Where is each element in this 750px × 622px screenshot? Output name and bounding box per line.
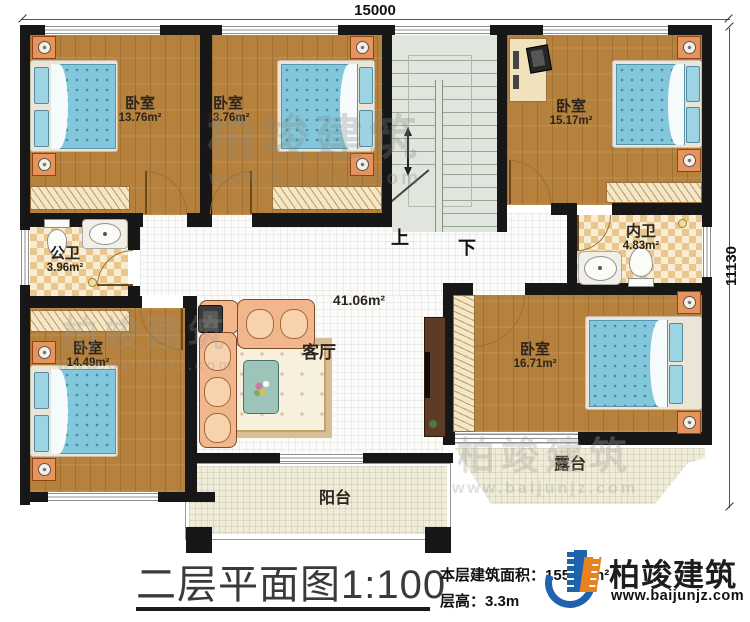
sink-drain-dot [598, 266, 602, 270]
lamp-icon [38, 158, 51, 171]
stair-arrow-up-icon [404, 127, 412, 136]
nightstand [677, 149, 701, 172]
bedroom-tl-label: 卧室 13.76m² [103, 96, 177, 124]
bedroom-br-label: 卧室 16.71m² [498, 342, 572, 370]
lamp-icon [38, 346, 51, 359]
window [702, 227, 712, 277]
inner-bath-label: 内卫 4.83m² [604, 224, 678, 252]
logo-building-orange-icon [580, 557, 602, 592]
room-name: 卧室 [54, 341, 122, 357]
nightstand [677, 411, 701, 434]
nightstand [32, 36, 56, 59]
wall [200, 25, 212, 227]
right-dimension-label: 11130 [723, 231, 739, 301]
sliding-door-balcony [280, 453, 363, 463]
flower-decor [252, 378, 272, 398]
room-area: 13.76m² [191, 112, 265, 124]
door-leaf [577, 215, 579, 251]
room-area: 15.17m² [534, 115, 608, 127]
tv-icon [526, 44, 552, 73]
lamp-icon [38, 41, 51, 54]
room-name: 卧室 [103, 96, 177, 112]
floor-drain-icon [88, 278, 97, 287]
floor-height-value: 3.3m [485, 593, 519, 610]
toilet-tank [44, 219, 70, 228]
nightstand [32, 341, 56, 364]
stairs-down-label: 下 [455, 234, 479, 260]
window [45, 25, 160, 35]
lamp-icon [683, 296, 696, 309]
floor-drain-icon [678, 219, 687, 228]
pillow [34, 415, 49, 452]
window [222, 25, 338, 35]
top-dimension-label: 15000 [340, 2, 410, 18]
lamp-icon [683, 416, 696, 429]
tv-icon [198, 305, 223, 333]
bed-sheet [650, 320, 667, 407]
wall [252, 213, 382, 227]
sofa-cushion [204, 377, 231, 407]
wardrobe [453, 295, 475, 432]
tv-screen [203, 311, 218, 328]
balcony-column-left [186, 527, 212, 553]
public-bath-label: 公卫 3.96m² [33, 246, 97, 274]
wall [382, 25, 392, 227]
lamp-icon [356, 158, 369, 171]
door-leaf [509, 160, 511, 204]
pillow [669, 323, 683, 362]
nightstand [677, 291, 701, 314]
room-area: 13.76m² [103, 112, 177, 124]
nightstand [677, 36, 701, 59]
wardrobe [30, 186, 130, 210]
sink [578, 251, 622, 285]
door-leaf [97, 284, 133, 286]
stair-divider [435, 80, 443, 232]
wall [551, 203, 577, 215]
nightstand [32, 458, 56, 481]
room-area: 4.83m² [604, 240, 678, 252]
sink [82, 219, 128, 249]
nightstand [350, 153, 374, 176]
pillow [686, 66, 700, 102]
floor-height-label: 层高： [440, 593, 485, 610]
pillow [359, 67, 373, 104]
wardrobe [606, 182, 702, 203]
sliding-door-terrace [455, 432, 578, 445]
lamp-icon [356, 41, 369, 54]
lamp-icon [683, 41, 696, 54]
brand-logo: 柏竣建筑 www.baijunjz.com [545, 548, 745, 616]
living-room-label: 客厅 [293, 338, 345, 363]
window [20, 230, 30, 285]
door-leaf [181, 308, 183, 350]
room-area: 14.49m² [54, 357, 122, 369]
nightstand [32, 153, 56, 176]
bedroom-tr-label: 卧室 15.17m² [534, 99, 608, 127]
sink-drain-dot [103, 232, 107, 236]
lamp-icon [38, 463, 51, 476]
sofa-cushion [204, 413, 231, 443]
room-name: 卧室 [191, 96, 265, 112]
pillow [686, 107, 700, 143]
pillow [34, 372, 49, 409]
wall [128, 286, 140, 296]
stairs-up-label: 上 [388, 224, 412, 250]
wall [20, 296, 142, 308]
bed-sheet [340, 64, 357, 149]
stairwell [392, 35, 497, 232]
nightstand [350, 36, 374, 59]
wardrobe [272, 186, 382, 210]
wall [612, 203, 702, 215]
sofa-cushion [204, 341, 231, 371]
dresser-item [513, 51, 519, 69]
bed [30, 365, 118, 457]
bed [612, 60, 702, 148]
room-area: 3.96m² [33, 262, 97, 274]
tv-screen [531, 49, 546, 67]
title-underline [136, 607, 430, 611]
stair-arrow-stem [407, 136, 409, 167]
wall [567, 215, 577, 283]
pillow [669, 365, 683, 404]
pillow [359, 110, 373, 147]
wall [187, 213, 212, 227]
tv-icon [425, 352, 430, 398]
room-name: 卧室 [498, 342, 572, 358]
sofa-cushion [246, 309, 274, 339]
door-leaf [145, 171, 147, 214]
stair-arrow-down-icon [404, 167, 412, 176]
window [48, 492, 158, 502]
balcony-column-right [425, 527, 451, 553]
room-name: 内卫 [604, 224, 678, 240]
bedroom-tm-label: 卧室 13.76m² [191, 96, 265, 124]
window [543, 25, 668, 35]
sofa-left [199, 332, 237, 448]
room-name: 公卫 [33, 246, 97, 262]
pillow [34, 67, 49, 104]
wall [525, 283, 567, 295]
pillow [34, 110, 49, 147]
living-room-area: 41.06m² [320, 292, 398, 308]
balcony-label: 阳台 [308, 484, 362, 508]
wall [497, 25, 507, 232]
toilet-tank [628, 278, 654, 287]
lamp-icon [683, 154, 696, 167]
plant-icon [429, 420, 437, 428]
wall [128, 227, 140, 250]
brand-website: www.baijunjz.com [611, 588, 747, 604]
room-name: 卧室 [534, 99, 608, 115]
bedroom-bl-label: 卧室 14.49m² [54, 341, 122, 369]
sofa-cushion [280, 309, 308, 339]
wardrobe [30, 310, 130, 332]
bed [585, 316, 702, 410]
top-dimension-line [22, 19, 730, 20]
room-area: 16.71m² [498, 358, 572, 370]
dresser-item [513, 75, 519, 89]
coffee-table [243, 360, 279, 414]
plan-title: 二层平面图1:100 [136, 552, 446, 600]
door-leaf [250, 171, 252, 214]
wall [185, 296, 197, 502]
brand-name: 柏竣建筑 [609, 550, 745, 584]
bed-sheet [668, 64, 684, 145]
bed [277, 60, 375, 152]
terrace-label: 露台 [543, 450, 597, 474]
floor-plan-canvas: 15000 11130 [0, 0, 750, 622]
window [395, 25, 490, 35]
floor-area-label: 本层建筑面积： [440, 567, 545, 584]
